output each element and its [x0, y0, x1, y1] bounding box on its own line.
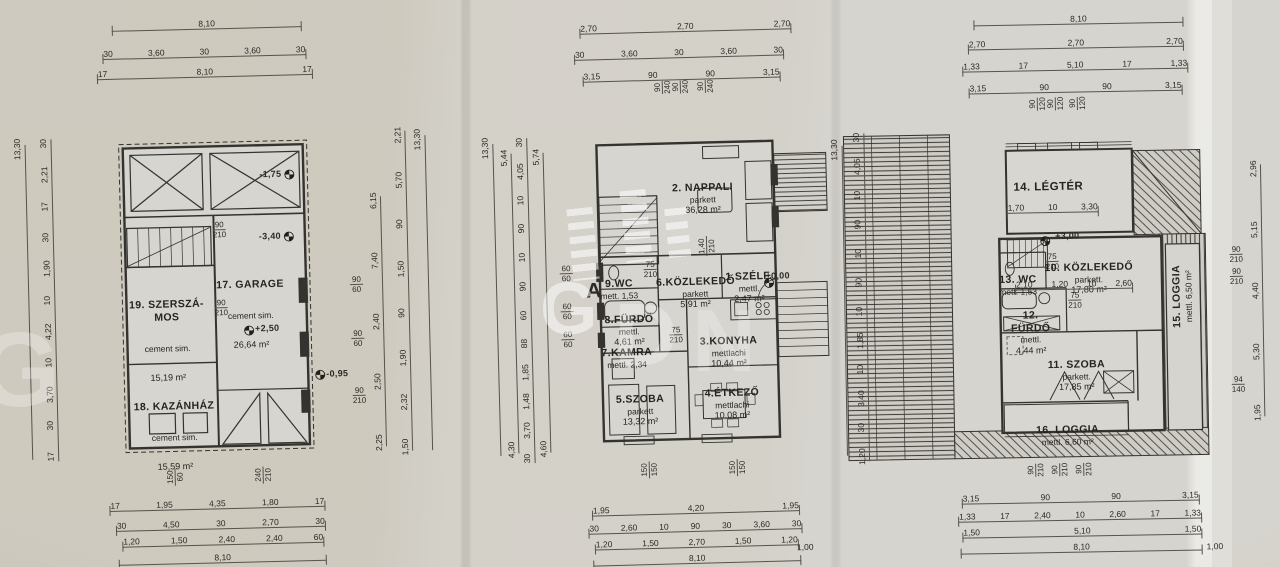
dim-pair: 90210 — [1026, 463, 1046, 477]
room-nappali: 2. NAPPALIparkett36,28 m² — [657, 161, 749, 235]
room-szerszamos-material: cement sim. — [127, 342, 207, 354]
room-szoba-5: 5.SZOBAparkett13,32 m² — [606, 373, 674, 447]
dim-pair: 1,40210 — [697, 236, 717, 256]
room-szerszamos-label: 19. SZERSZÁ- MOS — [126, 298, 207, 325]
dim-pair: 240210 — [253, 466, 273, 484]
plan-upper-floor: 14. LÉGTÉR 10. KÖZLEKEDŐparkett.17,80 m²… — [825, 0, 1280, 567]
room-kazanhaz-material: cement sim. — [130, 431, 220, 443]
level-mark: -0,95 — [326, 368, 348, 379]
window-size: 94140 — [1232, 375, 1246, 395]
room-loggia-16: 16. LOGGIAmettl. 6,60 m² — [1012, 404, 1123, 467]
room-kazanhaz-label: 18. KAZÁNHÁZ — [129, 399, 219, 414]
plan-ground-floor: 2. NAPPALIparkett36,28 m² 9.WCmett. 1,53… — [453, 0, 848, 567]
room-szoba-11: 11. SZOBAparkett.17,85 m² — [1031, 339, 1122, 413]
dim-pair: 90210 — [1074, 462, 1094, 476]
dim-extra: 1,00 — [797, 542, 814, 552]
dim-pair: 90240 — [653, 80, 673, 94]
window-size: 9060 — [351, 329, 364, 349]
door-size: 75210 — [669, 325, 683, 345]
level-mark: ±0,00 — [766, 270, 790, 281]
door-size: 75210 — [1045, 252, 1059, 272]
dim-row: 2,101,20102,60 — [1015, 276, 1133, 291]
window-size: 90210 — [1229, 245, 1243, 265]
window-size: 90210 — [1230, 267, 1244, 287]
dim-row: 1,70103,30 — [1007, 199, 1099, 214]
dim-pair: 150150 — [640, 461, 660, 479]
level-mark: -1,75 — [259, 169, 281, 180]
dim-pair: 90210 — [1050, 463, 1070, 477]
level-mark: +2,50 — [255, 323, 280, 334]
door-size: 75210 — [1068, 291, 1082, 311]
level-mark: +3,00 — [1055, 231, 1079, 241]
dim-pair: 90120 — [1068, 96, 1088, 110]
level-mark: -3,40 — [259, 231, 281, 242]
dim-pair: 90240 — [671, 80, 691, 94]
window-size: 6060 — [561, 330, 574, 350]
window-size: 90210 — [353, 386, 367, 406]
window-size: 9060 — [350, 275, 363, 295]
window-size: 6060 — [560, 302, 573, 322]
dim-pair: 150150 — [728, 459, 748, 477]
dim-pair: 90120 — [1028, 97, 1048, 111]
dim-pair: 90240 — [696, 79, 716, 93]
room-garage-area: 26,64 m² — [201, 339, 301, 352]
plan-basement: 17. GARAGE cement sim. 26,64 m² 19. SZER… — [0, 0, 467, 567]
room-loggia-15: 15. LOGGIAmettl. 6,50 m² — [1151, 246, 1214, 347]
dim-pair: 90120 — [1046, 97, 1066, 111]
room-etkezo: 4.ÉTKEZŐmettlachi10,08 m² — [696, 367, 768, 441]
window-size: 6060 — [559, 264, 572, 284]
room-szelfogo: 1.SZÉLF.mettl.2,47 m² — [721, 251, 777, 324]
scanned-floorplan-sheet: 17. GARAGE cement sim. 26,64 m² 19. SZER… — [0, 0, 1280, 567]
door-size: 90210 — [212, 220, 226, 240]
dim-pair: 15060 — [165, 468, 185, 486]
door-size: 75210 — [643, 260, 657, 280]
section-mark-a: A — [586, 279, 602, 303]
room-garage-label: 17. GARAGE — [200, 277, 300, 292]
dim-extra: 1,00 — [1207, 541, 1224, 551]
door-size: 90210 — [214, 298, 228, 318]
